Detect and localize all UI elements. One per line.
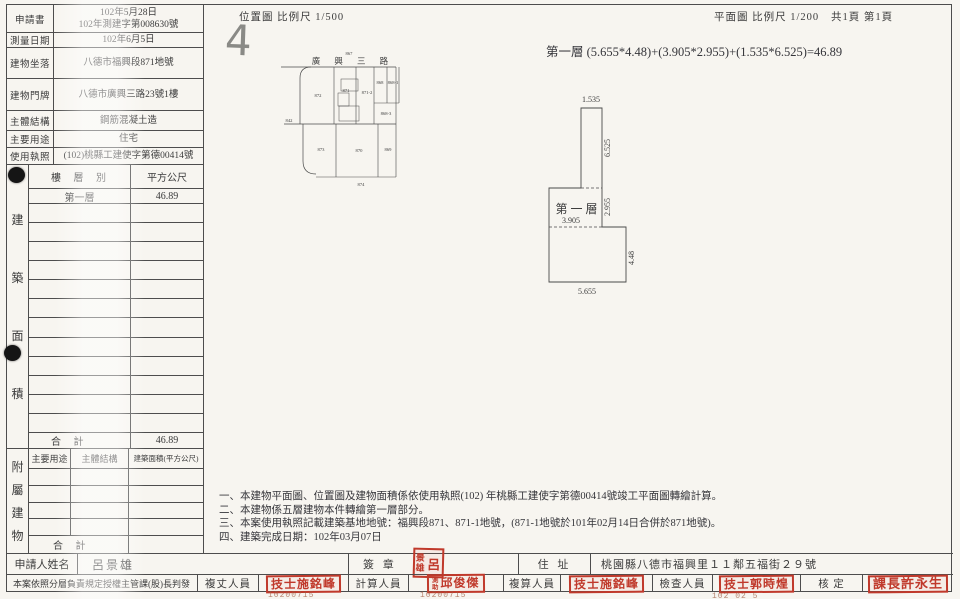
info-label: 建物坐落	[7, 48, 54, 78]
stamp-cell: 技士施銘峰	[259, 575, 349, 592]
table-row	[29, 486, 203, 503]
parcel-number: 871-2	[362, 90, 373, 95]
floor-plan-scale-label: 平面圖 比例尺 1/200	[714, 9, 819, 24]
document-sheet-border: 位置圖 比例尺 1/500 平面圖 比例尺 1/200 共1頁 第1頁 4 申請…	[6, 4, 952, 592]
table-row	[29, 280, 203, 299]
table-row	[29, 395, 203, 414]
role-label-resurvey: 複丈人員	[198, 575, 259, 592]
dim-mid-width: 3.905	[562, 216, 580, 225]
table-row: 主要用途 住宅	[7, 131, 203, 148]
info-label: 主體結構	[7, 111, 54, 130]
side-char: 物	[11, 527, 23, 544]
address-label: 住 址	[519, 554, 591, 574]
table-row	[29, 318, 203, 337]
table-row	[29, 376, 203, 395]
table-header-row: 主要用途 主體結構 建築面積(平方公尺)	[29, 449, 203, 469]
table-row	[29, 414, 203, 433]
role-label-calculation: 計算人員	[349, 575, 409, 592]
parcel-number: 874	[358, 182, 366, 187]
area-cell: 46.89	[131, 189, 203, 203]
table-row	[29, 223, 203, 242]
table-row	[29, 299, 203, 318]
applicant-address: 桃園縣八德市福興里１１鄰五福街２９號	[591, 554, 953, 574]
info-value: 八德市福興段871地號	[54, 48, 203, 78]
floor-plan-drawing: 1.535 6.525 2.955 3.905 4.48 5.655 第一層	[541, 91, 681, 306]
table-row: 第一層 46.89	[29, 189, 203, 204]
role-label-inspection: 檢查人員	[653, 575, 713, 592]
parcel-number: 869	[385, 147, 393, 152]
location-map-scale-label: 位置圖 比例尺 1/500	[239, 9, 344, 24]
annex-table: 主要用途 主體結構 建築面積(平方公尺) 合 計	[29, 449, 203, 553]
handwritten-mark: 4	[224, 21, 252, 62]
floor-label: 第一層	[555, 202, 600, 216]
empty-rows	[29, 204, 203, 433]
authorization-note: 本案依照分層負責規定授權主管課(股)長判發	[7, 575, 198, 592]
stamp-date: 102 02 5	[712, 592, 758, 599]
table-row: 建物坐落 八德市福興段871地號	[7, 48, 203, 79]
note-line: 一、本建物平面圖、位置圖及建物面積係依使用執照(102) 年桃縣工建使字第德00…	[219, 490, 722, 504]
annex-side-label: 附 屬 建 物	[7, 449, 29, 553]
table-row	[29, 503, 203, 520]
parcel-number: 873	[318, 147, 326, 152]
total-row: 合 計	[29, 536, 203, 553]
stamp-cell: 技士施銘峰	[561, 575, 653, 592]
table-row	[29, 357, 203, 376]
info-value: 102年5月28日 102年測建字第008630號	[54, 5, 203, 32]
dim-top-width: 1.535	[582, 95, 600, 104]
building-area-side-label: 建 築 面 積	[7, 165, 29, 448]
table-header-row: 樓 層 別 平方公尺	[29, 165, 203, 189]
punch-hole	[4, 345, 21, 361]
street-name: 廣 興 三 路	[312, 56, 394, 66]
info-label: 使用執照	[7, 148, 54, 164]
punch-hole	[8, 167, 25, 183]
info-value: 鋼筋混凝土造	[54, 111, 203, 130]
side-char: 築	[11, 269, 23, 286]
applicant-name: 呂景雄	[78, 554, 349, 574]
info-value: 102年6月5日	[54, 33, 203, 47]
side-char: 面	[11, 327, 23, 344]
building-info-table: 申請書 102年5月28日 102年測建字第008630號 測量日期 102年6…	[7, 5, 204, 164]
info-value: (102)桃縣工建使字第德00414號	[54, 148, 203, 164]
dim-bottom-width: 5.655	[578, 287, 596, 296]
officer-stamp: 課長許永生	[868, 574, 948, 593]
total-label: 合 計	[29, 433, 131, 448]
annex-building-section: 附 屬 建 物 主要用途 主體結構 建築面積(平方公尺) 合 計	[7, 448, 204, 553]
total-label: 合 計	[29, 536, 129, 553]
area-formula: 第一層 (5.655*4.48)+(3.905*2.955)+(1.535*6.…	[546, 41, 842, 60]
stamp-date: 10200715	[420, 591, 466, 599]
info-label: 申請書	[7, 5, 54, 32]
dim-mid-right-height: 2.955	[603, 198, 612, 216]
seal-label: 簽 章	[363, 556, 397, 572]
table-row: 測量日期 102年6月5日	[7, 33, 203, 48]
total-value	[129, 536, 203, 553]
info-label: 建物門牌	[7, 79, 54, 110]
stamp-cell: 測助邱俊傑	[409, 575, 504, 592]
side-char: 積	[11, 385, 23, 402]
table-row: 申請書 102年5月28日 102年測建字第008630號	[7, 5, 203, 33]
table-row: 建物門牌 八德市廣興三路23號1樓	[7, 79, 203, 111]
column-header-structure: 主體結構	[71, 449, 129, 468]
parcel-number: 872	[315, 93, 323, 98]
table-row	[29, 242, 203, 261]
approval-row: 本案依照分層負責規定授權主管課(股)長判發 複丈人員 技士施銘峰 計算人員 測助…	[7, 574, 953, 592]
officer-stamp: 技士郭時煌	[719, 574, 794, 593]
total-row: 合 計 46.89	[29, 433, 203, 448]
page-count-label: 共1頁 第1頁	[831, 9, 893, 24]
dim-lower-right-height: 4.48	[627, 251, 636, 265]
side-char: 建	[11, 504, 23, 521]
applicant-row: 申請人姓名 呂景雄 簽 章 呂 景 雄 住 址 桃園縣八德市福興里１１鄰五福街２…	[7, 553, 953, 574]
table-row	[29, 204, 203, 223]
parcel-number: 868-1	[388, 80, 399, 85]
seal-char: 景	[416, 553, 428, 563]
column-header-use: 主要用途	[29, 449, 71, 468]
info-label: 測量日期	[7, 33, 54, 47]
table-row: 使用執照 (102)桃縣工建使字第德00414號	[7, 148, 203, 164]
info-value: 八德市廣興三路23號1樓	[54, 79, 203, 110]
table-row	[29, 338, 203, 357]
info-label: 主要用途	[7, 131, 54, 147]
parcel-number: 871	[343, 88, 351, 93]
seal-char: 呂	[428, 550, 442, 576]
parcel-number: 868	[377, 80, 385, 85]
dim-upper-right-height: 6.525	[603, 139, 612, 157]
stamp-date: 10200715	[268, 591, 314, 599]
column-header-area: 平方公尺	[131, 165, 203, 188]
parcel-number: 870	[356, 148, 364, 153]
column-header-area: 建築面積(平方公尺)	[129, 449, 203, 468]
role-label-recalculation: 複算人員	[504, 575, 561, 592]
applicant-name-label: 申請人姓名	[7, 554, 78, 574]
stamp-cell: 課長許永生	[863, 575, 953, 592]
parcel-number: 842	[286, 118, 294, 123]
table-row	[29, 261, 203, 280]
table-row	[29, 519, 203, 536]
info-value: 住宅	[54, 131, 203, 147]
notes-block: 一、本建物平面圖、位置圖及建物面積係依使用執照(102) 年桃縣工建使字第德00…	[219, 490, 722, 544]
officer-stamp: 技士施銘峰	[569, 574, 644, 593]
stamp-cell: 技士郭時煌	[713, 575, 801, 592]
building-area-table: 樓 層 別 平方公尺 第一層 46.89	[29, 165, 203, 448]
side-char: 屬	[11, 481, 23, 498]
location-map-drawing: 867 廣 興 三 路 872 871 871-2 868 868-1 868-…	[277, 47, 477, 217]
parcel-number: 868-3	[381, 111, 392, 116]
floor-cell: 第一層	[29, 189, 131, 203]
seal-cell: 簽 章 呂 景 雄	[349, 554, 519, 574]
table-row	[29, 469, 203, 486]
total-value: 46.89	[131, 433, 203, 448]
note-line: 四、建築完成日期：102年03月07日	[219, 531, 722, 545]
seal-char: 雄	[415, 563, 427, 573]
table-row: 主體結構 鋼筋混凝土造	[7, 111, 203, 131]
note-line: 二、本建物係五層建物本件轉繪第一層部分。	[219, 504, 722, 518]
building-area-section: 建 築 面 積 樓 層 別 平方公尺 第一層 46.89	[7, 164, 204, 448]
note-line: 三、本案使用執照記載建築基地地號：福興段871、871-1地號，(871-1地號…	[219, 517, 722, 531]
column-header-floor: 樓 層 別	[29, 165, 131, 188]
side-char: 附	[11, 458, 23, 475]
scanned-building-survey-document: 位置圖 比例尺 1/500 平面圖 比例尺 1/200 共1頁 第1頁 4 申請…	[0, 0, 960, 599]
role-label-approval: 核 定	[801, 575, 863, 592]
stamp-name: 邱俊傑	[441, 576, 480, 590]
empty-rows	[29, 469, 203, 536]
side-char: 建	[11, 211, 23, 228]
